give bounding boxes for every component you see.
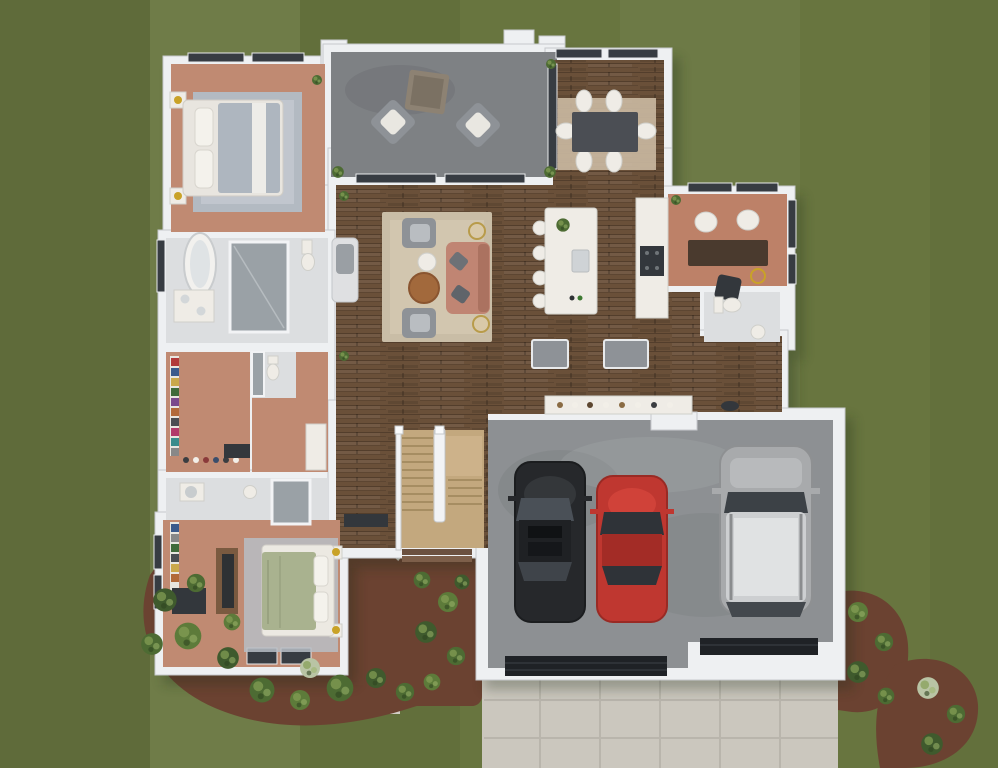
potted-plant (544, 166, 556, 178)
dining-chair (606, 90, 622, 112)
window (788, 200, 796, 248)
lamp (332, 626, 340, 634)
floor-hall-east (664, 292, 700, 342)
mudroom-bench (532, 340, 568, 368)
front-door-mat (344, 514, 388, 527)
toilet (723, 298, 741, 312)
toilet-tank (268, 356, 278, 364)
dining-area (556, 90, 656, 172)
mudroom-bench (604, 340, 648, 368)
dining-table (572, 112, 638, 152)
dining-chair (636, 123, 656, 139)
patio-glass-door (445, 174, 525, 183)
potted-plant (339, 191, 349, 201)
lamp (174, 192, 182, 200)
vanity (174, 290, 214, 322)
bed2-blanket (262, 552, 316, 630)
potted-plant (671, 195, 681, 205)
lamp (174, 96, 182, 104)
dining-chair (606, 150, 622, 172)
garage-door-single (700, 638, 818, 655)
mow-stripe-dark (930, 0, 998, 768)
potted-plant (332, 166, 344, 178)
range-stove (640, 246, 664, 276)
closet-shelf (172, 588, 206, 614)
lamp (332, 548, 340, 556)
car-red-sedan (590, 476, 674, 622)
potted-plant (546, 59, 556, 69)
shoes (721, 401, 739, 411)
stair-landing (446, 436, 482, 476)
wardrobe (306, 424, 326, 470)
stair-rail-left (396, 428, 401, 550)
floor-plan-svg (0, 0, 998, 768)
side-table (418, 253, 436, 271)
guest-chair (695, 212, 717, 232)
window (154, 535, 162, 569)
bed-throw (252, 103, 266, 193)
window (688, 183, 732, 192)
pillow (195, 150, 213, 188)
window (188, 53, 244, 62)
island-sink (572, 250, 589, 272)
garage-step (651, 412, 697, 430)
newel-post (435, 426, 444, 434)
floor-patio (331, 52, 557, 177)
guest-chair (737, 210, 759, 230)
sink (181, 295, 190, 304)
garage-door-double (505, 656, 667, 676)
porch-step (402, 556, 472, 562)
mow-stripe-dark (0, 0, 150, 768)
window (157, 240, 165, 292)
window (548, 64, 557, 169)
car-black-sedan (508, 462, 592, 622)
sink (197, 307, 206, 316)
pillow (195, 108, 213, 146)
dining-chair (576, 150, 592, 172)
potted-plant (339, 351, 349, 361)
window (736, 183, 778, 192)
island-plant (556, 218, 569, 231)
dining-chair (576, 90, 592, 112)
patio-glass-door (356, 174, 436, 183)
closet-bench (224, 444, 250, 458)
gold-end-table (473, 316, 489, 332)
newel-post (395, 426, 403, 434)
floor-plan-render (0, 0, 998, 768)
car-silver-suv (712, 446, 820, 617)
master-bedroom (170, 92, 302, 212)
shower-2 (272, 480, 310, 524)
office-desk (688, 240, 768, 266)
pillow (314, 556, 328, 586)
toilet-tank (714, 297, 723, 313)
pillow (314, 592, 328, 622)
gold-end-table (469, 223, 485, 239)
stair-rail-center (434, 428, 445, 522)
bed-blanket (218, 103, 280, 193)
toilet-tank (302, 240, 312, 254)
toilet (302, 254, 315, 271)
sink (751, 325, 765, 339)
porch-step (402, 549, 472, 555)
coffee-table (409, 273, 439, 303)
window (556, 49, 602, 58)
window (252, 53, 304, 62)
tv (222, 554, 234, 608)
shower-stall (252, 352, 264, 396)
toilet (267, 364, 279, 380)
potted-plant (312, 75, 322, 85)
sink-2 (244, 486, 257, 499)
window (608, 49, 658, 58)
staircase (395, 426, 484, 550)
window (788, 254, 796, 284)
